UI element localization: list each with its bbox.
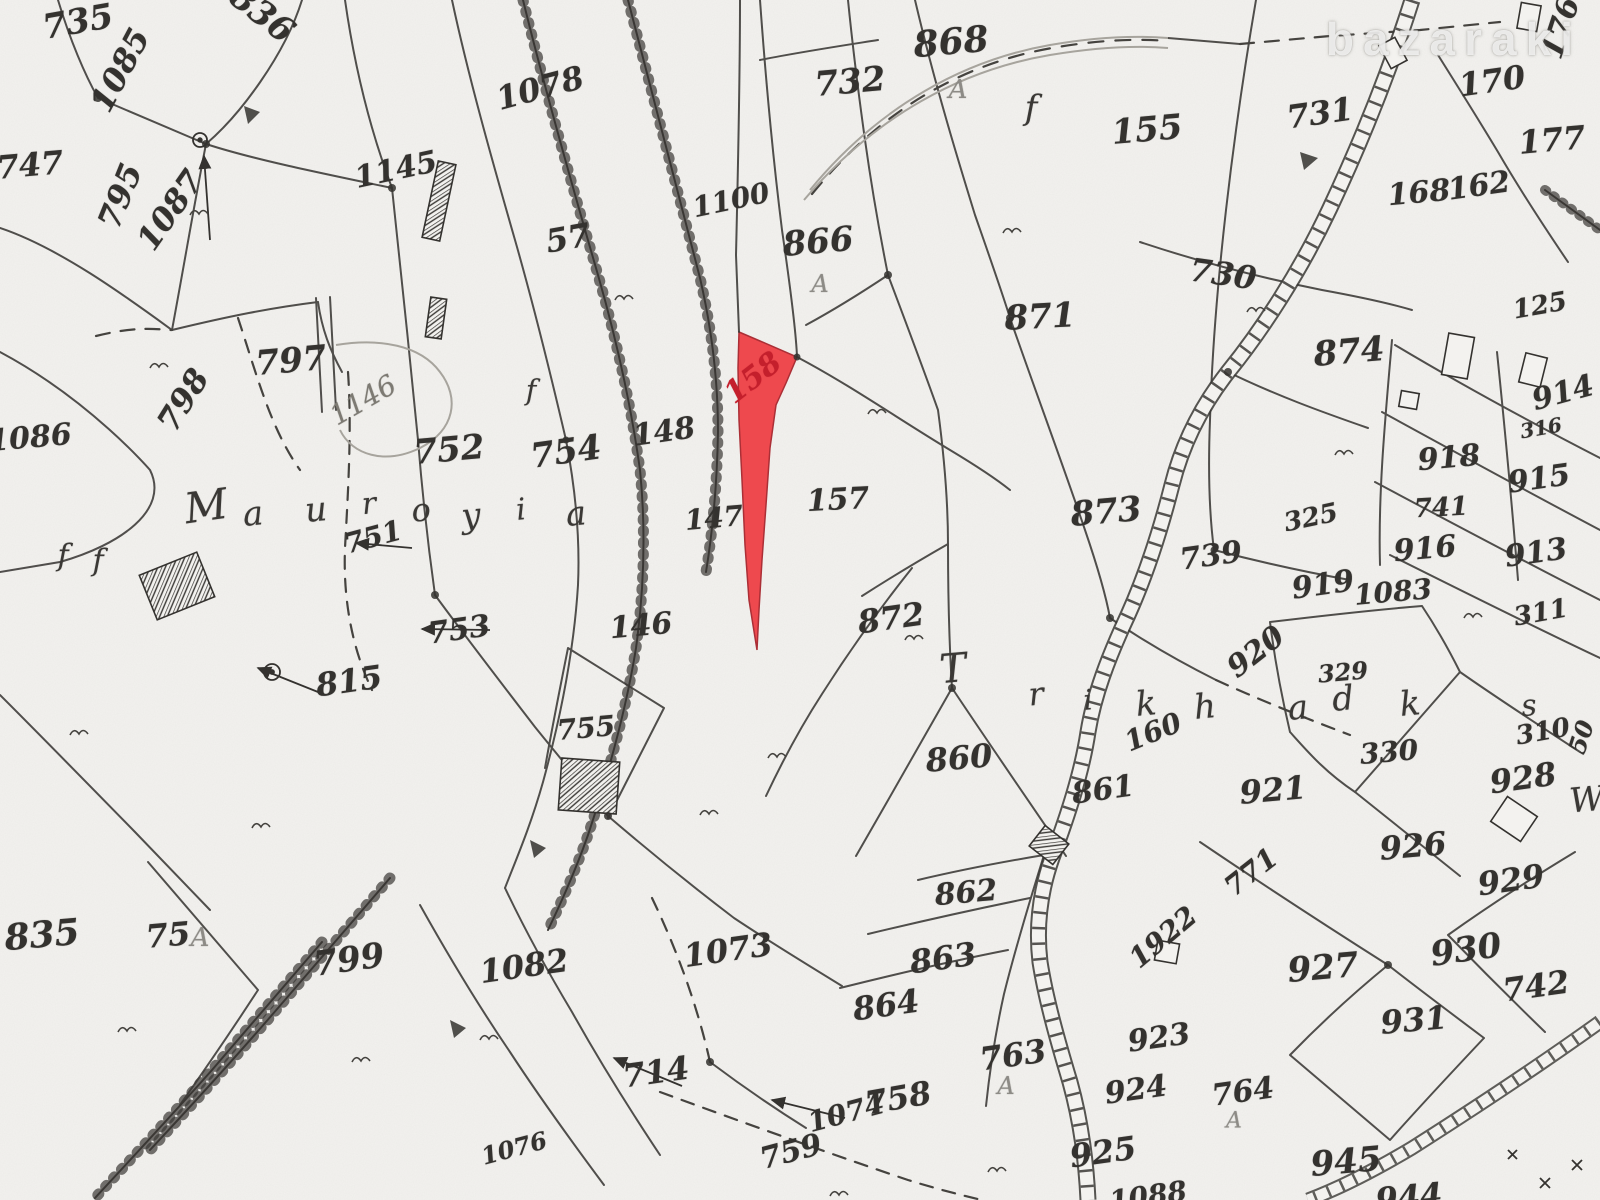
watermark: bazaraki	[1326, 12, 1582, 66]
paper-texture	[0, 0, 1600, 1200]
building-icon	[558, 758, 619, 814]
cadastral-map: 7358361085747795108711451078571100732868…	[0, 0, 1600, 1200]
building-icon	[1154, 940, 1179, 964]
map-linework	[0, 0, 1600, 1200]
building-icon	[1399, 391, 1420, 410]
arrow-icon	[422, 629, 490, 630]
